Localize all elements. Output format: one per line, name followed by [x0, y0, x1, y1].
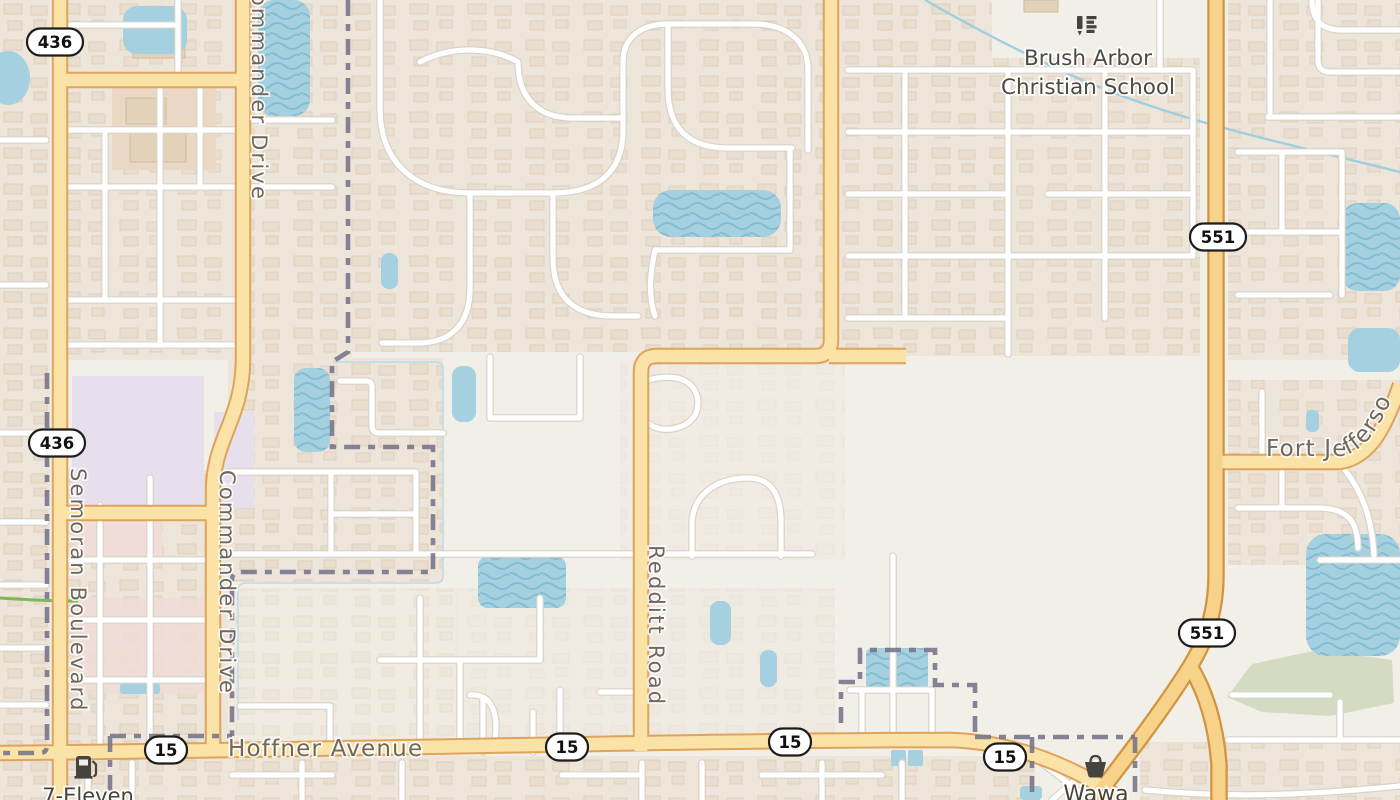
- shield-label: 15: [155, 741, 178, 760]
- shield-label: 436: [40, 434, 74, 453]
- shield-label: 15: [556, 738, 579, 757]
- poi-label-line2: Christian School: [1001, 75, 1175, 100]
- shield-label: 15: [779, 733, 802, 752]
- route-shield-15-c: 15: [769, 729, 811, 756]
- poi-label-line1: Brush Arbor: [1024, 46, 1152, 71]
- route-shield-436-mid: 436: [29, 430, 85, 457]
- school-icon: [1077, 16, 1097, 36]
- route-shield-436-north: 436: [27, 29, 83, 56]
- shield-label: 551: [1201, 228, 1235, 247]
- road-label-redditt-road: Redditt Road: [644, 545, 668, 706]
- shield-label: 551: [1190, 624, 1224, 643]
- road-label-commander-drive-south: Commander Drive: [215, 470, 239, 695]
- route-shield-15-d: 15: [984, 744, 1026, 771]
- poi-label: 7-Eleven: [42, 784, 134, 800]
- route-shield-15-a: 15: [145, 737, 187, 764]
- map-canvas[interactable]: 436 436 551 551 15 15 15 15 Semoran Boul…: [0, 0, 1400, 800]
- poi-label: Wawa: [1063, 782, 1128, 800]
- map-svg: 436 436 551 551 15 15 15 15 Semoran Boul…: [0, 0, 1400, 800]
- road-label-hoffner-avenue: Hoffner Avenue: [228, 736, 423, 762]
- shield-label: 15: [994, 748, 1017, 767]
- route-shield-551-north: 551: [1190, 224, 1246, 251]
- school-building: [1024, 0, 1058, 12]
- route-shield-551-south: 551: [1179, 620, 1235, 647]
- road-label-semoran-boulevard: Semoran Boulevard: [66, 468, 90, 713]
- industrial-area: [72, 376, 204, 508]
- shield-label: 436: [38, 33, 72, 52]
- route-shield-15-b: 15: [546, 734, 588, 761]
- road-label-commander-drive-north: Commander Drive: [247, 0, 271, 201]
